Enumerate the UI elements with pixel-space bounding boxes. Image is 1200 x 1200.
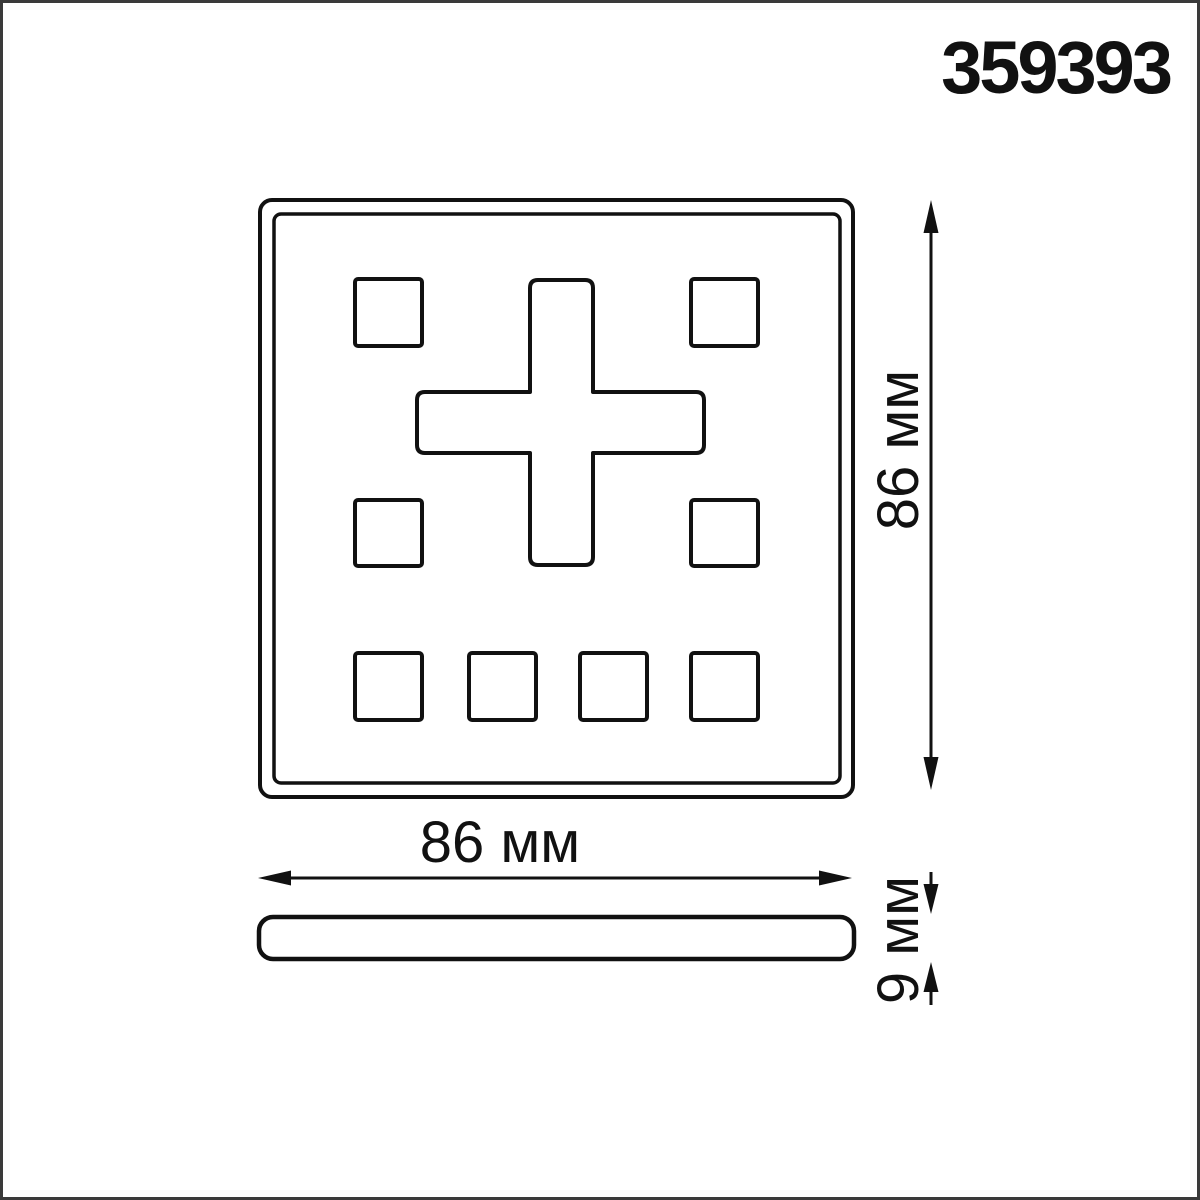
page-border-frame (2, 2, 1199, 1199)
thickness-dimension-label: 9 мм (866, 876, 931, 1004)
part-number: 359393 (941, 26, 1171, 109)
technical-drawing-page: 359393 86 мм (0, 0, 1200, 1200)
thickness-dimension: 9 мм (866, 872, 939, 1005)
dimension-diagram: 359393 86 мм (0, 0, 1200, 1200)
height-dimension-label: 86 мм (866, 370, 931, 530)
width-dimension-label: 86 мм (420, 810, 580, 875)
